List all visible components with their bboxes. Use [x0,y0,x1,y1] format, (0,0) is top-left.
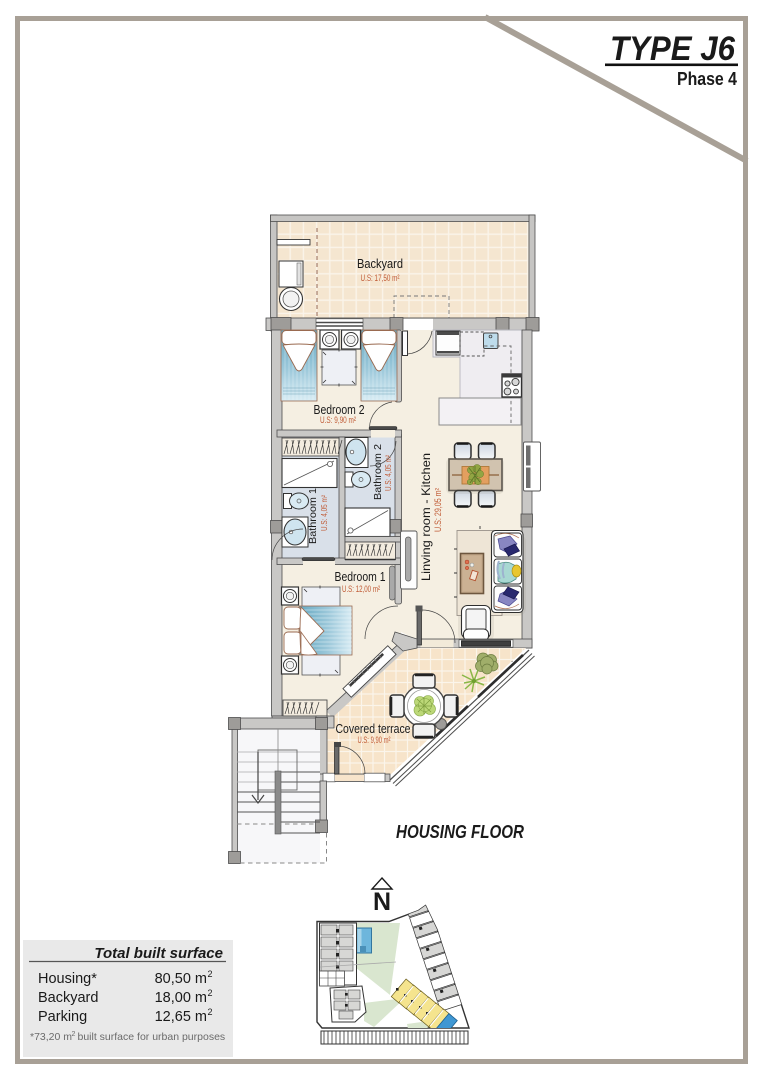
svg-text:80,50 m: 80,50 m [155,971,207,987]
svg-text:Backyard: Backyard [38,990,98,1006]
svg-text:Backyard: Backyard [357,257,403,271]
svg-text:HOUSING FLOOR: HOUSING FLOOR [396,821,525,842]
svg-text:Covered terrace: Covered terrace [336,721,411,736]
svg-text:Parking: Parking [38,1009,87,1025]
svg-text:U.S: 4,05 m²: U.S: 4,05 m² [320,495,329,531]
svg-text:U.S: 9,90 m²: U.S: 9,90 m² [358,735,391,746]
svg-text:Phase 4: Phase 4 [677,68,738,89]
svg-text:U.S: 12,00 m²: U.S: 12,00 m² [342,584,380,595]
svg-text:Total built surface: Total built surface [94,945,223,962]
svg-text:18,00 m: 18,00 m [155,990,207,1006]
svg-text:U.S: 17,50 m²: U.S: 17,50 m² [361,273,400,284]
svg-text:built surface for urban purpos: built surface for urban purposes [78,1031,226,1043]
svg-text:U.S: 4,05 m²: U.S: 4,05 m² [384,455,393,491]
svg-text:Bathroom 2: Bathroom 2 [373,444,384,500]
svg-text:Housing*: Housing* [38,971,97,987]
svg-text:TYPE J6: TYPE J6 [610,30,736,68]
svg-text:2: 2 [208,1007,213,1017]
svg-text:U.S: 29,05 m²: U.S: 29,05 m² [433,488,443,532]
svg-text:2: 2 [72,1031,76,1038]
svg-text:U.S: 9,90 m²: U.S: 9,90 m² [320,415,356,426]
svg-text:Bathroom 1: Bathroom 1 [308,488,319,544]
svg-text:12,65 m: 12,65 m [155,1009,207,1025]
svg-text:2: 2 [208,988,213,998]
svg-text:N: N [373,888,391,916]
svg-text:2: 2 [208,969,213,979]
svg-text:Bedroom 1: Bedroom 1 [335,569,386,584]
svg-text:Linving room - Kitchen: Linving room - Kitchen [419,453,433,581]
svg-text:*73,20 m: *73,20 m [30,1031,72,1043]
